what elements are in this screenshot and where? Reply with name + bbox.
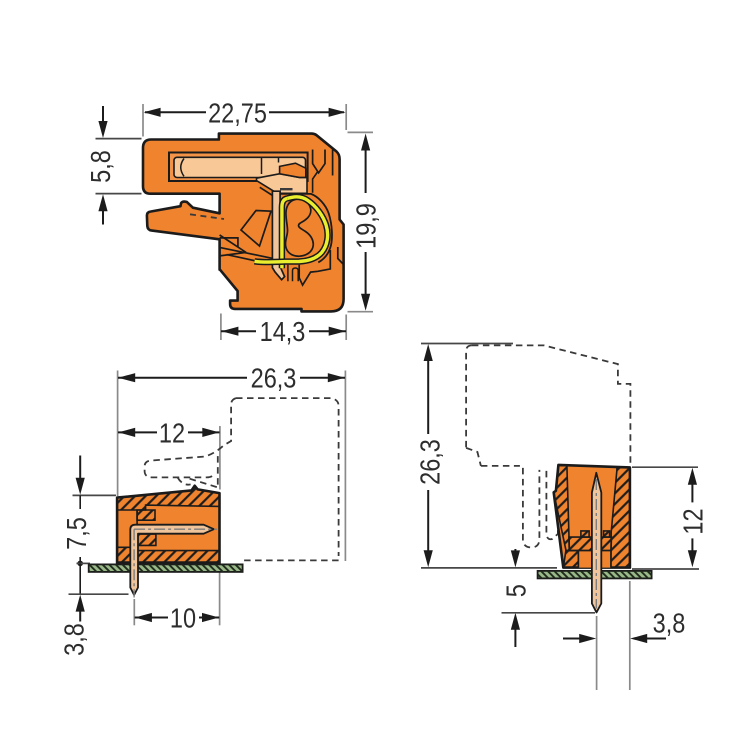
svg-text:7,5: 7,5 — [62, 517, 92, 550]
svg-text:22,75: 22,75 — [208, 98, 267, 128]
svg-text:14,3: 14,3 — [260, 317, 306, 347]
svg-text:10: 10 — [170, 604, 196, 634]
svg-text:5: 5 — [502, 584, 532, 597]
svg-text:12: 12 — [159, 419, 185, 449]
svg-text:26,3: 26,3 — [251, 364, 297, 394]
svg-text:26,3: 26,3 — [416, 439, 446, 485]
svg-text:19,9: 19,9 — [352, 203, 382, 249]
svg-text:3,8: 3,8 — [60, 623, 90, 656]
svg-text:12: 12 — [679, 508, 709, 534]
svg-text:5,8: 5,8 — [86, 150, 116, 183]
svg-text:3,8: 3,8 — [653, 609, 686, 639]
